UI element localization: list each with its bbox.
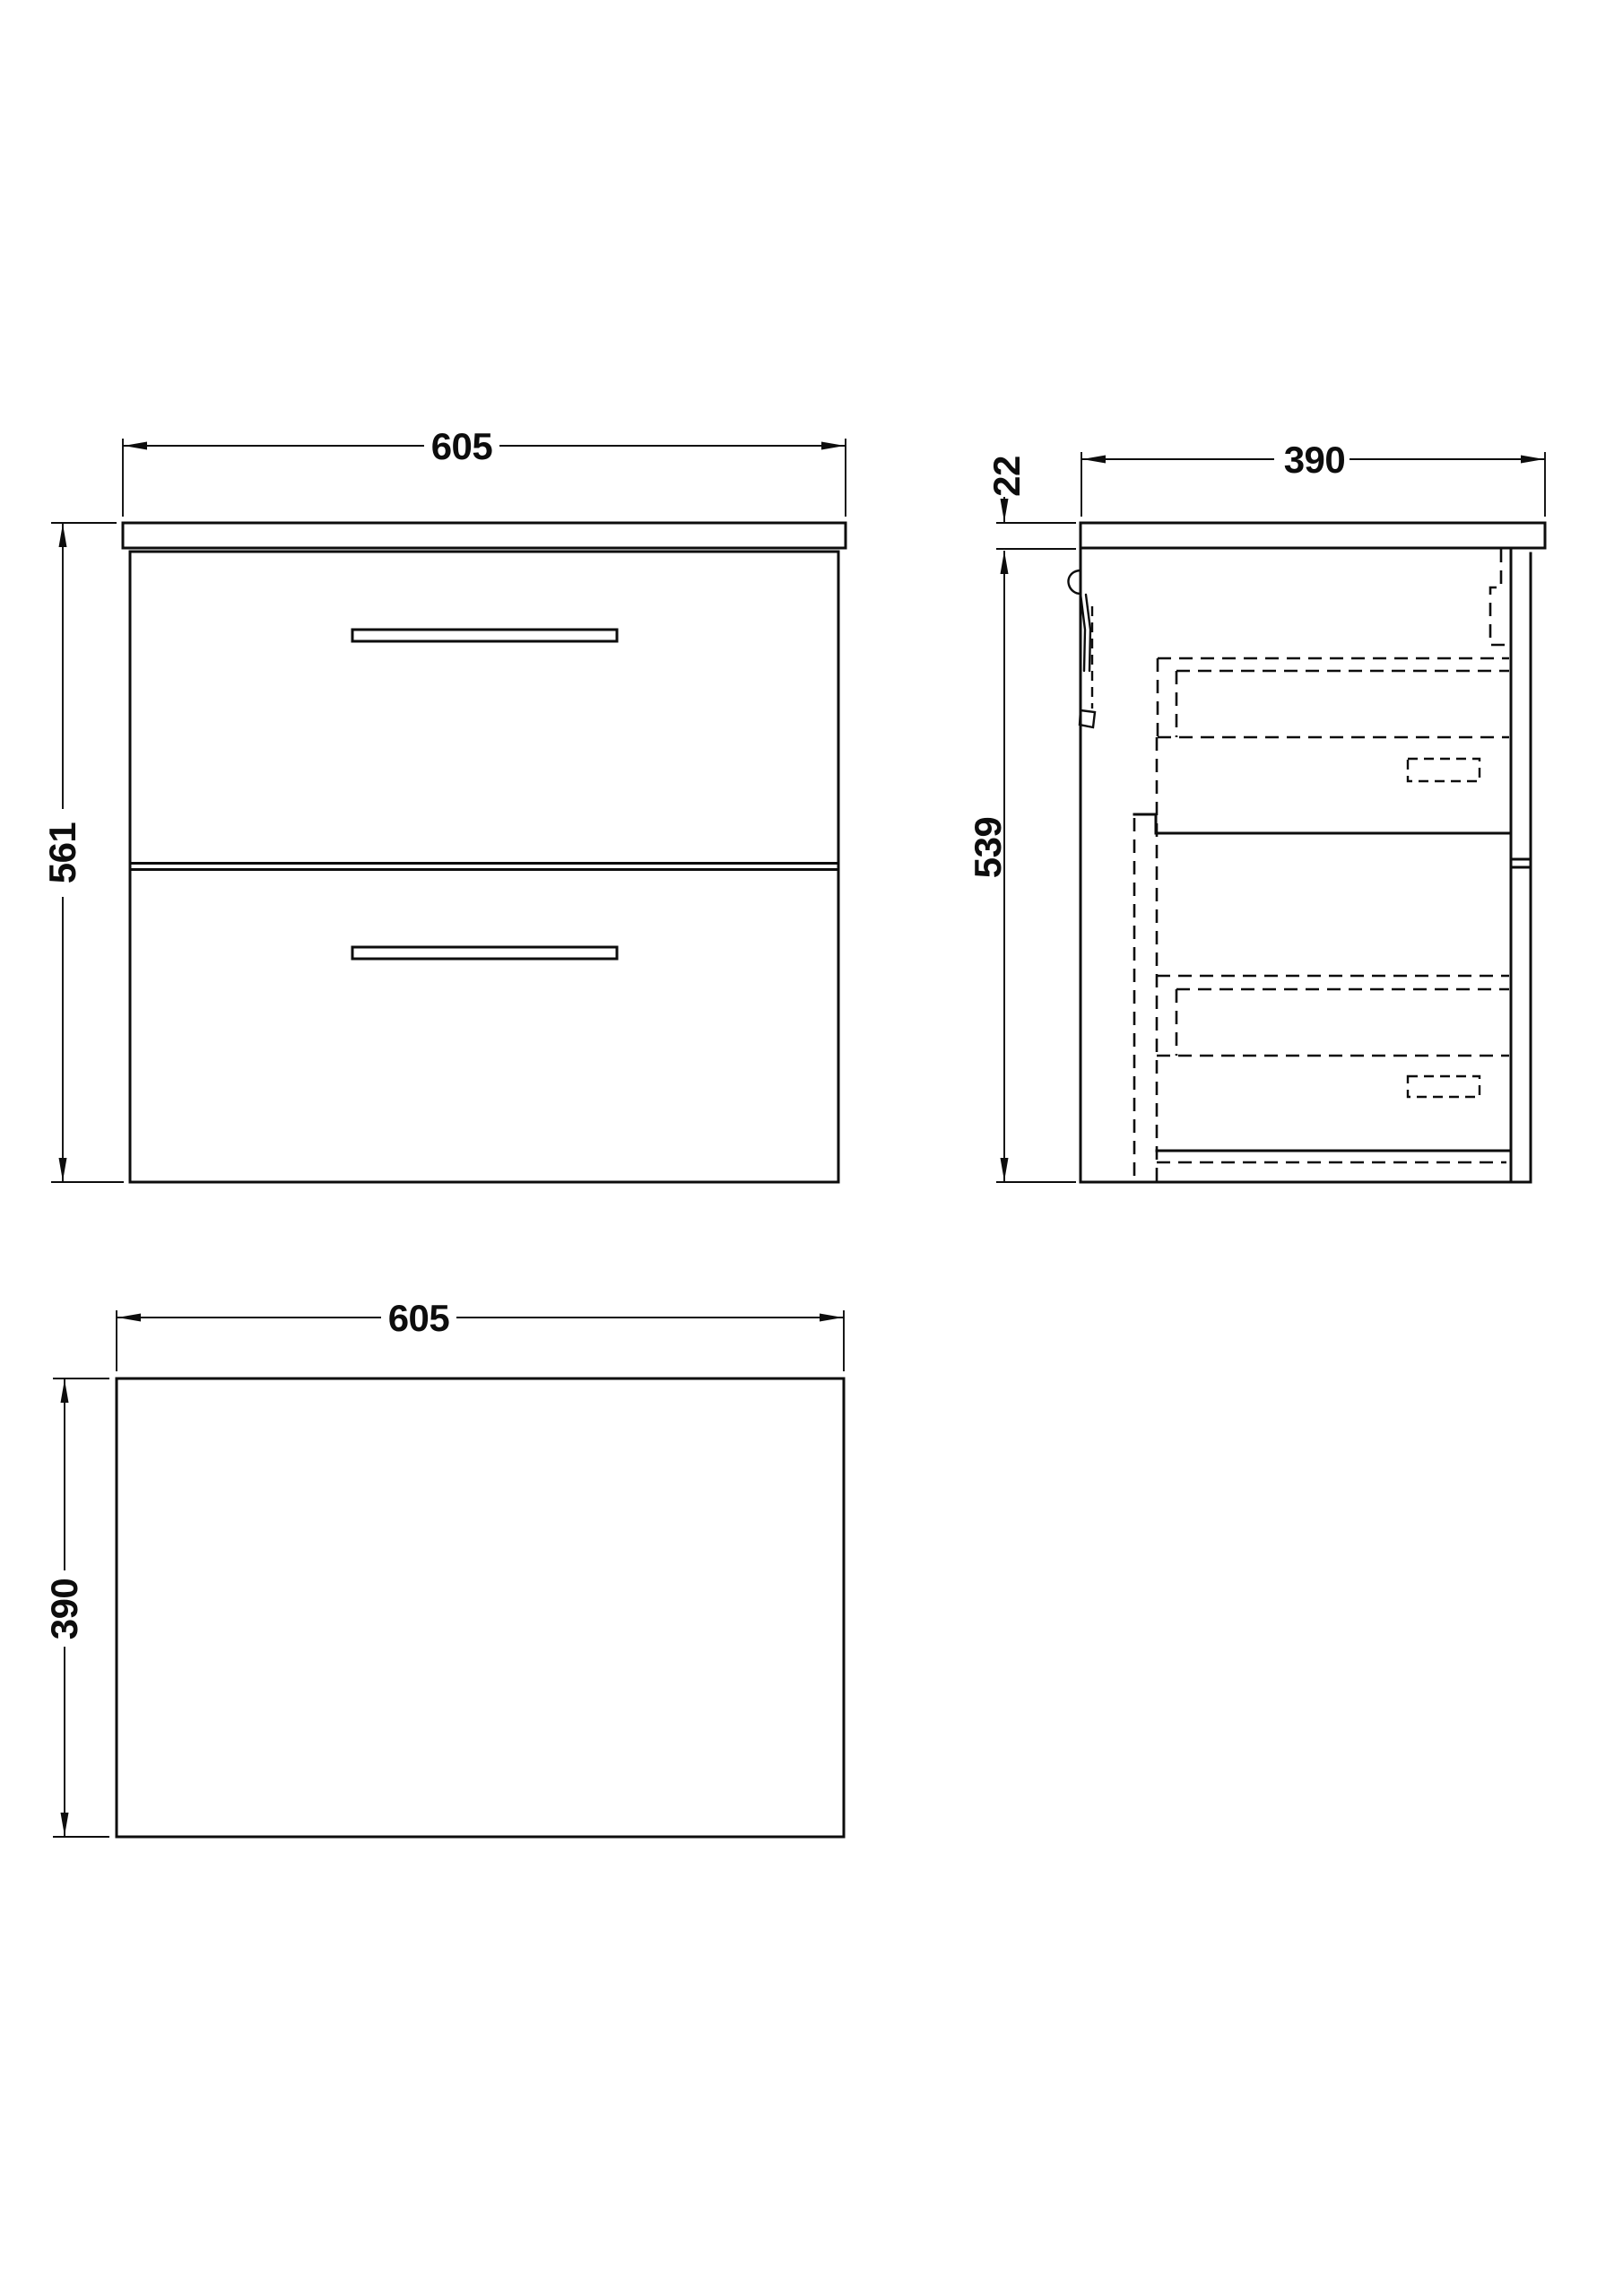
side-view: 390 22 539 [967, 439, 1545, 1182]
upper-drawer-runner [1408, 759, 1480, 781]
plan-depth-label: 390 [43, 1578, 85, 1640]
side-depth-label: 390 [1284, 439, 1346, 481]
side-cabinet-height-dimension: 539 [967, 551, 1076, 1182]
drawing-canvas: 605 561 [0, 0, 1623, 2296]
plan-worktop-outline [117, 1378, 844, 1837]
plan-view: 605 390 [43, 1297, 844, 1837]
front-cabinet-body [130, 552, 838, 1182]
side-worktop [1081, 523, 1545, 548]
front-height-label: 561 [41, 822, 83, 884]
bracket-foot [1080, 710, 1095, 727]
front-lower-drawer-handle [352, 947, 617, 959]
front-width-dimension: 605 [123, 425, 846, 517]
side-worktop-thickness-label: 22 [985, 456, 1028, 497]
lower-drawer-runner [1408, 1076, 1480, 1097]
front-width-label: 605 [431, 425, 493, 467]
front-worktop [123, 523, 846, 548]
front-view: 605 561 [41, 425, 846, 1182]
plan-width-dimension: 605 [117, 1297, 844, 1371]
vanity-unit-technical-drawing: 605 561 [0, 0, 1623, 2296]
plan-width-label: 605 [388, 1297, 450, 1339]
front-upper-drawer-handle [352, 630, 617, 641]
plan-depth-dimension: 390 [43, 1378, 109, 1837]
side-mid-bracket-cap [1134, 814, 1156, 833]
front-height-dimension: 561 [41, 523, 124, 1182]
side-cabinet-height-label: 539 [967, 817, 1009, 879]
side-worktop-thickness-dimension: 22 [985, 456, 1076, 549]
side-depth-dimension: 390 [1081, 439, 1545, 517]
side-hidden-structure [1134, 549, 1510, 1182]
hidden-front-step [1490, 549, 1510, 645]
